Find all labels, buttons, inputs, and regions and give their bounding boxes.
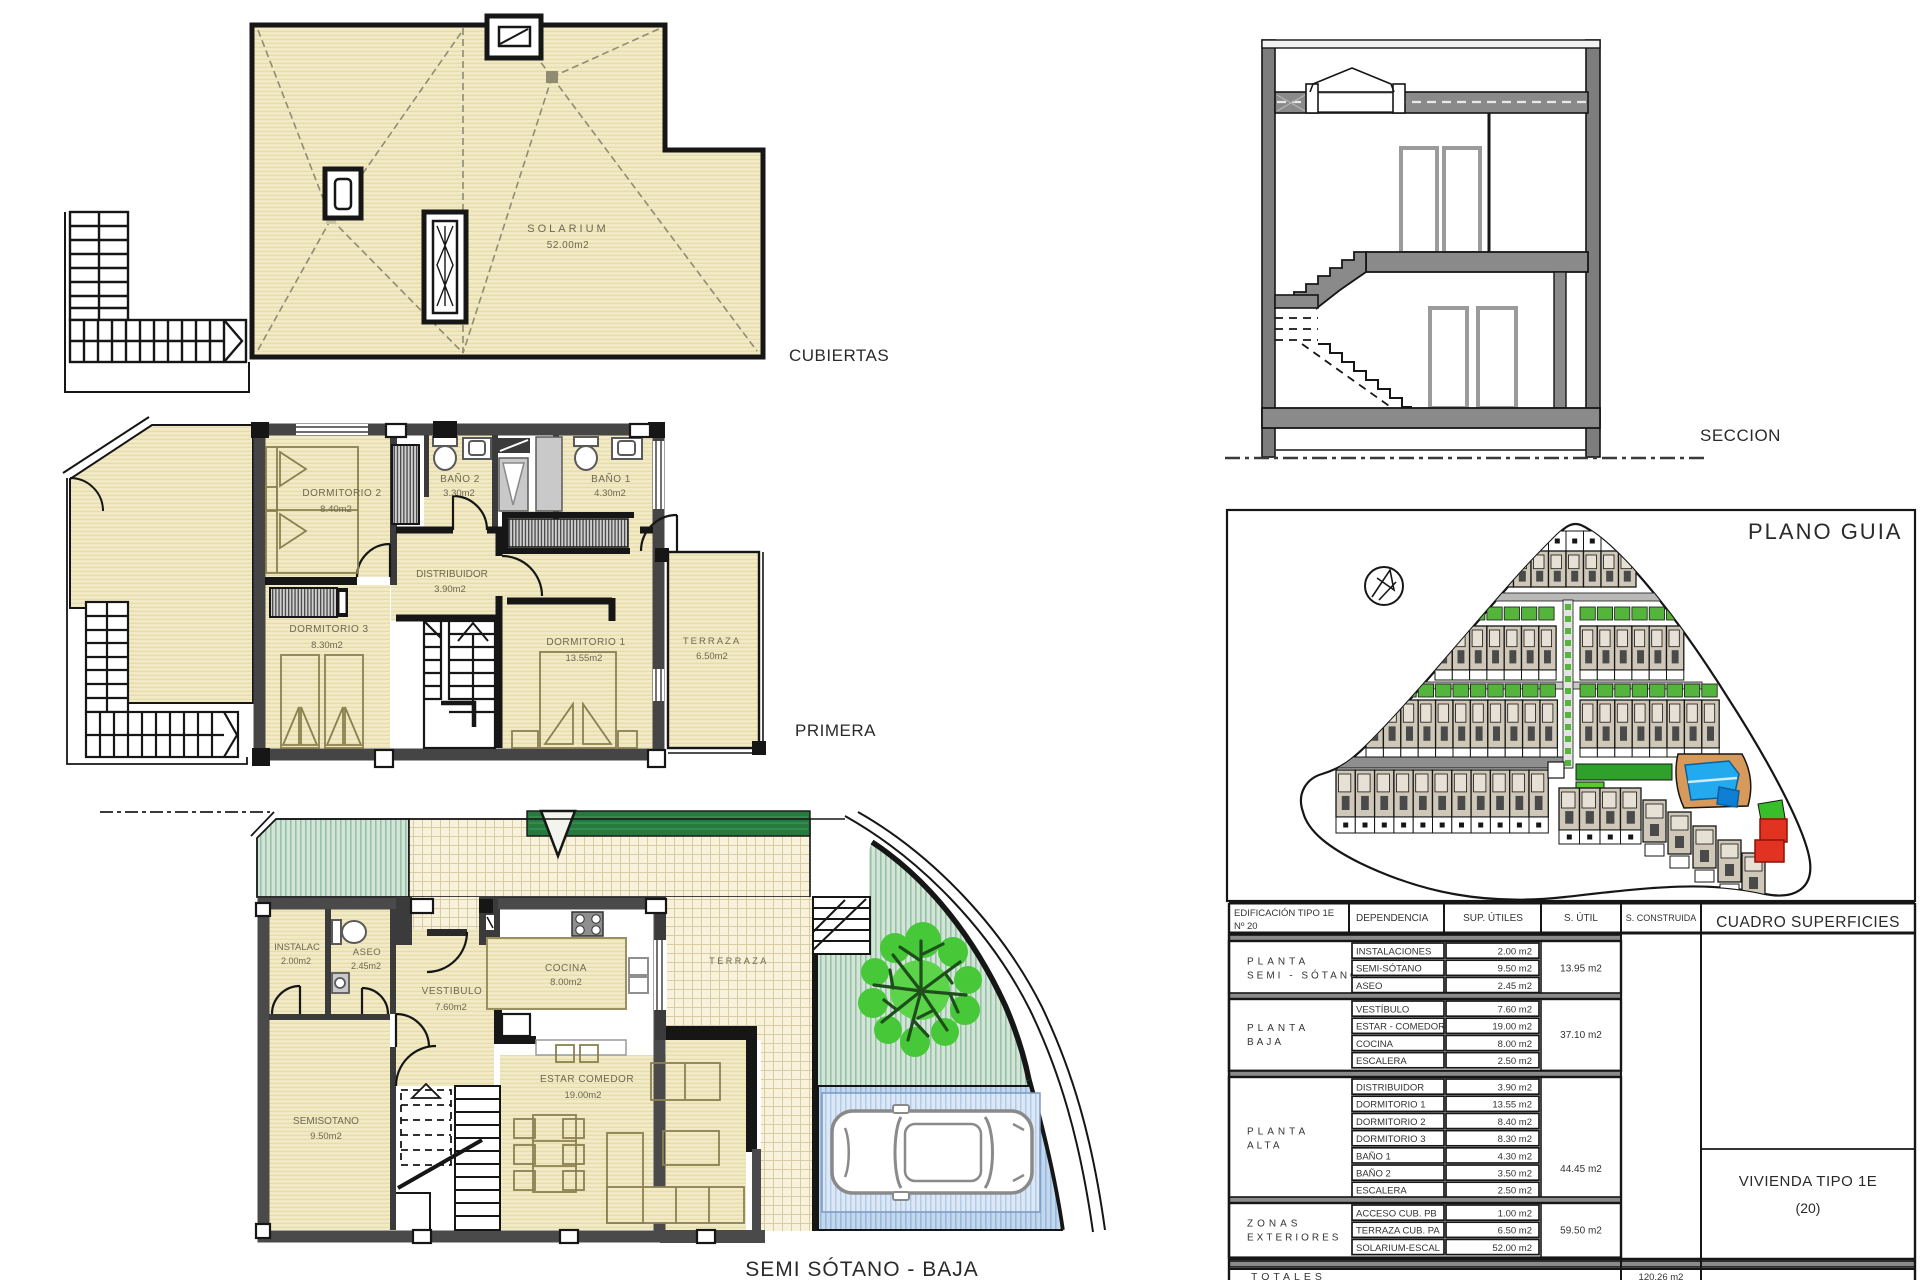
svg-text:DISTRIBUIDOR: DISTRIBUIDOR	[1356, 1083, 1424, 1094]
svg-text:2.45 m2: 2.45 m2	[1498, 981, 1532, 992]
svg-text:PLANTA: PLANTA	[1247, 1127, 1309, 1138]
svg-text:SOLARIUM-ESCAL: SOLARIUM-ESCAL	[1356, 1243, 1440, 1254]
svg-text:ASEO: ASEO	[1356, 981, 1382, 992]
svg-text:2.45m2: 2.45m2	[351, 961, 381, 971]
svg-text:7.60m2: 7.60m2	[435, 1002, 467, 1013]
svg-text:ACCESO CUB. PB: ACCESO CUB. PB	[1356, 1209, 1437, 1220]
svg-text:9.50 m2: 9.50 m2	[1498, 964, 1532, 975]
svg-text:SUP. ÚTILES: SUP. ÚTILES	[1463, 911, 1523, 924]
svg-text:ESCALERA: ESCALERA	[1356, 1186, 1407, 1197]
svg-text:SEMI - SÓTANO: SEMI - SÓTANO	[1247, 968, 1361, 981]
svg-text:4.30m2: 4.30m2	[594, 488, 626, 499]
svg-text:DORMITORIO 3: DORMITORIO 3	[289, 624, 368, 635]
svg-text:ESTAR COMEDOR: ESTAR COMEDOR	[540, 1074, 634, 1085]
svg-text:DORMITORIO 1: DORMITORIO 1	[1356, 1100, 1426, 1111]
svg-text:SEMI SÓTANO - BAJA: SEMI SÓTANO - BAJA	[745, 1258, 978, 1280]
svg-text:PLANTA: PLANTA	[1247, 956, 1309, 967]
svg-text:BAÑO 2: BAÑO 2	[440, 472, 480, 485]
svg-text:ZONAS: ZONAS	[1247, 1218, 1301, 1229]
svg-text:1.00 m2: 1.00 m2	[1498, 1209, 1532, 1220]
svg-text:4.30 m2: 4.30 m2	[1498, 1151, 1532, 1162]
svg-text:8.40 m2: 8.40 m2	[1498, 1117, 1532, 1128]
svg-text:(20): (20)	[1796, 1200, 1821, 1216]
svg-text:19.00 m2: 19.00 m2	[1492, 1022, 1532, 1033]
svg-text:6.50 m2: 6.50 m2	[1498, 1226, 1532, 1237]
svg-text:S. ÚTIL: S. ÚTIL	[1564, 911, 1598, 924]
svg-text:8.30 m2: 8.30 m2	[1498, 1134, 1532, 1145]
svg-text:TERRAZA: TERRAZA	[683, 636, 741, 647]
svg-text:BAÑO 1: BAÑO 1	[591, 472, 631, 485]
svg-text:VESTÍBULO: VESTÍBULO	[1356, 1005, 1409, 1016]
svg-text:INSTALACIONES: INSTALACIONES	[1356, 947, 1431, 958]
svg-text:9.50m2: 9.50m2	[310, 1131, 342, 1142]
svg-text:BAÑO 1: BAÑO 1	[1356, 1151, 1391, 1162]
svg-text:3.50 m2: 3.50 m2	[1498, 1169, 1532, 1180]
svg-text:CUADRO SUPERFICIES: CUADRO SUPERFICIES	[1716, 914, 1900, 931]
svg-text:8.40m2: 8.40m2	[320, 504, 352, 515]
svg-text:2.50 m2: 2.50 m2	[1498, 1186, 1532, 1197]
svg-text:PLANTA: PLANTA	[1247, 1023, 1309, 1034]
svg-text:ASEO: ASEO	[353, 947, 381, 958]
svg-text:3.90m2: 3.90m2	[434, 584, 466, 595]
svg-text:SOLARIUM: SOLARIUM	[527, 223, 608, 235]
svg-text:SECCION: SECCION	[1700, 426, 1781, 445]
svg-text:TERRAZA CUB. PA: TERRAZA CUB. PA	[1356, 1226, 1440, 1237]
svg-text:EXTERIORES: EXTERIORES	[1247, 1232, 1341, 1243]
svg-text:6.50m2: 6.50m2	[696, 651, 728, 662]
svg-text:COCINA: COCINA	[545, 963, 587, 974]
svg-text:2.00 m2: 2.00 m2	[1498, 947, 1532, 958]
svg-text:8.30m2: 8.30m2	[311, 640, 343, 651]
svg-text:DEPENDENCIA: DEPENDENCIA	[1356, 913, 1429, 924]
svg-text:2.00m2: 2.00m2	[281, 956, 311, 966]
svg-text:8.00m2: 8.00m2	[550, 977, 582, 988]
svg-text:DORMITORIO 2: DORMITORIO 2	[1356, 1117, 1426, 1128]
svg-text:2.50 m2: 2.50 m2	[1498, 1056, 1532, 1067]
svg-text:3.30m2: 3.30m2	[443, 488, 475, 499]
svg-text:DORMITORIO 2: DORMITORIO 2	[302, 488, 381, 499]
svg-text:37.10 m2: 37.10 m2	[1560, 1030, 1602, 1041]
svg-text:120.26 m2: 120.26 m2	[1639, 1272, 1684, 1280]
svg-text:13.55 m2: 13.55 m2	[1492, 1100, 1532, 1111]
svg-text:VIVIENDA TIPO 1E: VIVIENDA TIPO 1E	[1739, 1173, 1878, 1190]
svg-text:PLANO GUIA: PLANO GUIA	[1748, 519, 1902, 544]
svg-text:BAÑO 2: BAÑO 2	[1356, 1169, 1391, 1180]
svg-text:19.00m2: 19.00m2	[565, 1090, 602, 1101]
svg-text:59.50 m2: 59.50 m2	[1560, 1225, 1602, 1236]
svg-text:BAJA: BAJA	[1247, 1037, 1284, 1048]
svg-text:44.45 m2: 44.45 m2	[1560, 1164, 1602, 1175]
svg-text:S. CONSTRUIDA: S. CONSTRUIDA	[1626, 913, 1697, 923]
svg-text:EDIFICACIÓN TIPO 1E: EDIFICACIÓN TIPO 1E	[1234, 908, 1334, 919]
svg-text:ESCALERA: ESCALERA	[1356, 1056, 1407, 1067]
svg-text:13.55m2: 13.55m2	[566, 653, 603, 664]
svg-text:Nº 20: Nº 20	[1234, 921, 1258, 932]
svg-text:13.95 m2: 13.95 m2	[1560, 963, 1602, 974]
svg-text:52.00m2: 52.00m2	[547, 240, 589, 251]
svg-text:CUBIERTAS: CUBIERTAS	[789, 346, 889, 365]
svg-text:SEMI-SÓTANO: SEMI-SÓTANO	[1356, 964, 1422, 975]
svg-text:VESTIBULO: VESTIBULO	[422, 986, 483, 997]
svg-text:DISTRIBUIDOR: DISTRIBUIDOR	[416, 569, 488, 580]
svg-text:3.90 m2: 3.90 m2	[1498, 1083, 1532, 1094]
svg-text:ALTA: ALTA	[1247, 1141, 1283, 1152]
svg-text:SEMISOTANO: SEMISOTANO	[293, 1116, 359, 1127]
svg-text:TERRAZA: TERRAZA	[709, 956, 769, 966]
svg-text:52.00 m2: 52.00 m2	[1492, 1243, 1532, 1254]
svg-text:TOTALES: TOTALES	[1251, 1271, 1326, 1280]
svg-text:8.00 m2: 8.00 m2	[1498, 1039, 1532, 1050]
svg-text:PRIMERA: PRIMERA	[795, 721, 876, 740]
svg-text:DORMITORIO 3: DORMITORIO 3	[1356, 1134, 1426, 1145]
svg-text:INSTALAC: INSTALAC	[274, 942, 320, 953]
svg-text:DORMITORIO 1: DORMITORIO 1	[546, 637, 625, 648]
svg-text:ESTAR - COMEDOR: ESTAR - COMEDOR	[1356, 1022, 1445, 1033]
svg-text:COCINA: COCINA	[1356, 1039, 1394, 1050]
svg-text:7.60 m2: 7.60 m2	[1498, 1005, 1532, 1016]
